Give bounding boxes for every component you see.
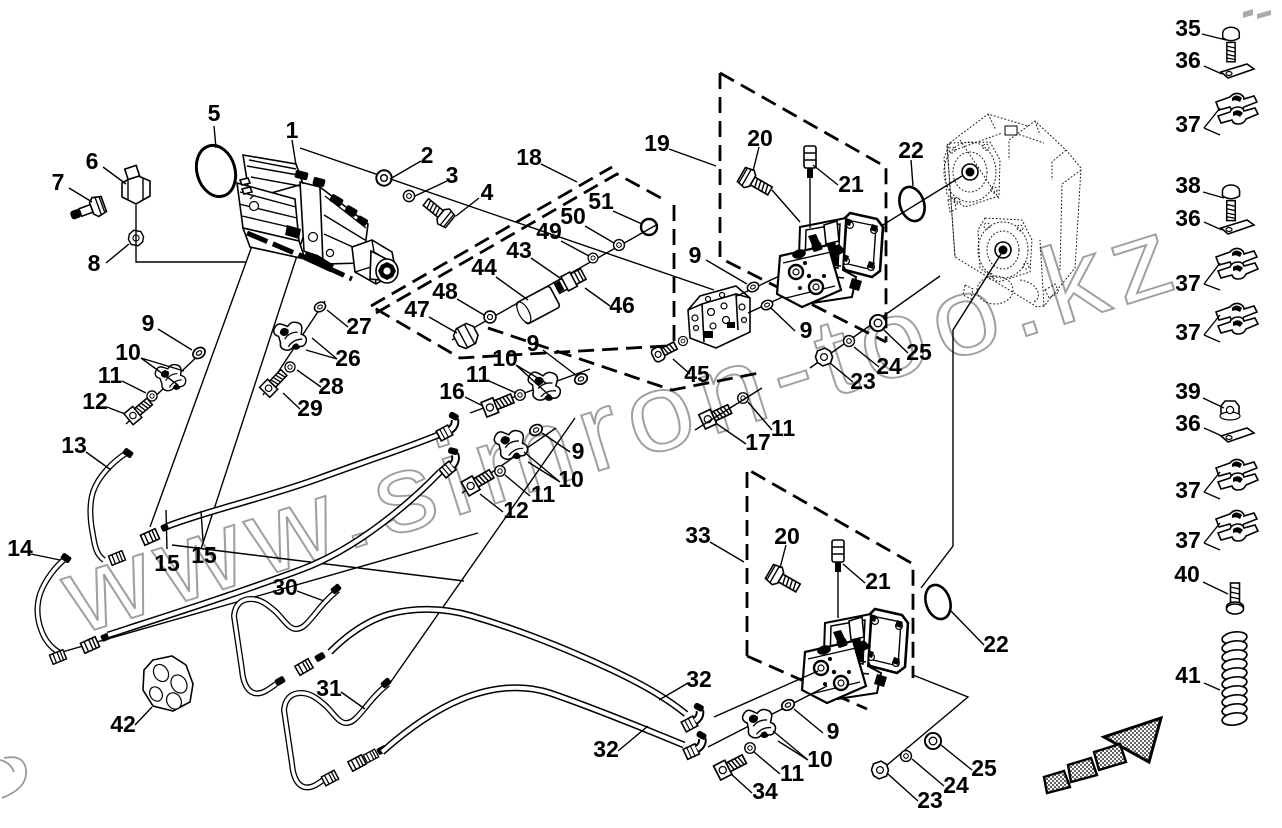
svg-text:23: 23 [850, 368, 876, 394]
svg-text:47: 47 [404, 296, 430, 322]
svg-text:41: 41 [1175, 662, 1201, 688]
svg-text:35: 35 [1175, 15, 1201, 41]
svg-text:37: 37 [1175, 477, 1201, 503]
svg-text:4: 4 [481, 179, 494, 205]
svg-text:9: 9 [142, 310, 155, 336]
svg-text:16: 16 [439, 378, 465, 404]
svg-text:43: 43 [506, 237, 532, 263]
svg-text:20: 20 [747, 125, 773, 151]
svg-text:25: 25 [906, 339, 932, 365]
svg-text:1: 1 [286, 117, 299, 143]
svg-text:9: 9 [572, 438, 585, 464]
svg-text:15: 15 [191, 542, 217, 568]
svg-text:46: 46 [609, 292, 635, 318]
svg-text:5: 5 [208, 100, 221, 126]
svg-text:13: 13 [61, 432, 87, 458]
svg-text:7: 7 [52, 169, 65, 195]
svg-text:11: 11 [771, 415, 796, 441]
svg-text:42: 42 [110, 711, 136, 737]
svg-text:9: 9 [527, 330, 540, 356]
svg-text:45: 45 [684, 361, 710, 387]
svg-text:37: 37 [1175, 270, 1201, 296]
svg-text:6: 6 [86, 148, 99, 174]
svg-text:10: 10 [492, 345, 518, 371]
svg-text:32: 32 [686, 666, 712, 692]
svg-text:12: 12 [503, 497, 529, 523]
svg-text:31: 31 [316, 675, 342, 701]
svg-text:24: 24 [943, 772, 969, 798]
svg-text:22: 22 [983, 631, 1009, 657]
svg-text:11: 11 [98, 362, 123, 388]
svg-text:20: 20 [774, 523, 800, 549]
svg-text:21: 21 [838, 171, 864, 197]
svg-text:25: 25 [971, 755, 997, 781]
svg-text:10: 10 [558, 466, 584, 492]
svg-text:49: 49 [536, 218, 562, 244]
svg-text:33: 33 [685, 522, 711, 548]
svg-text:23: 23 [917, 787, 943, 813]
svg-text:8: 8 [88, 250, 101, 276]
svg-text:22: 22 [898, 137, 924, 163]
svg-text:29: 29 [297, 395, 323, 421]
svg-text:37: 37 [1175, 111, 1201, 137]
svg-text:37: 37 [1175, 319, 1201, 345]
svg-text:12: 12 [82, 388, 108, 414]
svg-text:19: 19 [644, 130, 670, 156]
svg-text:17: 17 [745, 429, 771, 455]
svg-text:36: 36 [1175, 205, 1201, 231]
svg-text:50: 50 [560, 203, 586, 229]
svg-text:40: 40 [1174, 561, 1200, 587]
svg-text:39: 39 [1175, 378, 1201, 404]
svg-text:3: 3 [446, 162, 459, 188]
svg-text:44: 44 [471, 254, 497, 280]
svg-text:51: 51 [588, 188, 614, 214]
svg-text:11: 11 [531, 481, 556, 507]
svg-text:30: 30 [272, 574, 298, 600]
svg-text:38: 38 [1175, 172, 1201, 198]
svg-text:9: 9 [827, 718, 840, 744]
svg-text:36: 36 [1175, 410, 1201, 436]
svg-text:10: 10 [807, 746, 833, 772]
svg-text:48: 48 [432, 278, 458, 304]
svg-text:11: 11 [466, 361, 491, 387]
svg-text:9: 9 [800, 317, 813, 343]
svg-text:11: 11 [780, 760, 805, 786]
svg-text:14: 14 [7, 535, 33, 561]
svg-text:34: 34 [752, 778, 778, 804]
svg-text:26: 26 [335, 345, 361, 371]
svg-text:36: 36 [1175, 47, 1201, 73]
svg-text:2: 2 [421, 142, 434, 168]
svg-text:24: 24 [876, 353, 902, 379]
svg-text:9: 9 [689, 242, 702, 268]
svg-text:37: 37 [1175, 527, 1201, 553]
svg-text:21: 21 [865, 568, 891, 594]
svg-text:27: 27 [346, 313, 372, 339]
svg-text:18: 18 [516, 144, 542, 170]
svg-text:32: 32 [593, 736, 619, 762]
svg-text:15: 15 [154, 550, 180, 576]
